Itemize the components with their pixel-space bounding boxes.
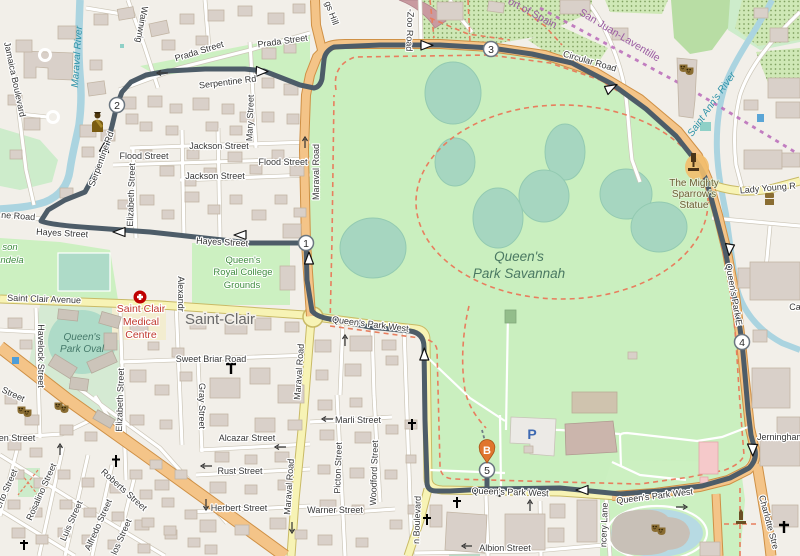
svg-text:The Mighty: The Mighty (669, 178, 718, 189)
svg-text:Jerningham: Jerningham (757, 432, 800, 442)
svg-text:Queen's: Queen's (64, 332, 101, 343)
svg-text:P: P (527, 426, 536, 442)
svg-text:-Zoo Road: -Zoo Road (404, 9, 415, 52)
svg-text:Jackson Street: Jackson Street (185, 171, 245, 181)
svg-text:Picton Street: Picton Street (332, 441, 344, 493)
svg-text:5: 5 (484, 465, 490, 477)
svg-text:Saint Clair: Saint Clair (117, 303, 166, 315)
svg-text:Queen's: Queen's (494, 249, 544, 264)
svg-text:Herbert Street: Herbert Street (211, 503, 268, 513)
svg-text:Saint-Clair: Saint-Clair (185, 311, 255, 328)
svg-text:Park Savannah: Park Savannah (473, 266, 565, 281)
svg-text:n Boulevard: n Boulevard (411, 496, 423, 544)
svg-text:B: B (483, 445, 491, 457)
svg-text:Mary Street: Mary Street (244, 94, 256, 141)
svg-text:Marli Street: Marli Street (335, 415, 382, 425)
svg-text:Alcazar Street: Alcazar Street (219, 433, 276, 443)
svg-text:Hayes Street: Hayes Street (36, 227, 89, 240)
svg-text:1: 1 (303, 238, 309, 250)
svg-text:Statue: Statue (680, 200, 709, 211)
svg-text:ndela: ndela (0, 255, 23, 266)
svg-text:en Street: en Street (0, 433, 36, 443)
svg-text:Flood Street: Flood Street (258, 157, 308, 167)
svg-text:gs Hill: gs Hill (323, 0, 341, 26)
svg-text:3: 3 (488, 44, 494, 56)
svg-text:Jackson Street: Jackson Street (189, 141, 249, 151)
svg-text:son: son (2, 242, 17, 253)
svg-text:Grounds: Grounds (224, 280, 261, 291)
svg-text:Centre: Centre (125, 329, 157, 341)
svg-text:Flood Street: Flood Street (119, 151, 169, 161)
svg-text:Gray Street: Gray Street (197, 383, 207, 430)
svg-text:Rust Street: Rust Street (217, 466, 263, 476)
svg-text:Alexandr: Alexandr (176, 276, 186, 312)
svg-text:Serpentine Rd: Serpentine Rd (198, 74, 256, 91)
svg-text:Maraval Road: Maraval Road (311, 144, 321, 200)
svg-text:Queen's: Queen's (225, 255, 260, 266)
svg-text:Park Oval: Park Oval (60, 344, 105, 355)
svg-text:ne Road: ne Road (1, 210, 36, 222)
svg-text:Ca: Ca (789, 302, 800, 312)
svg-text:Albion Street: Albion Street (479, 543, 531, 553)
svg-text:Royal College: Royal College (213, 267, 272, 278)
svg-text:Havelock Street: Havelock Street (36, 324, 46, 388)
svg-text:Queen's Park West: Queen's Park West (471, 486, 549, 499)
svg-text:Warner Street: Warner Street (307, 505, 363, 515)
svg-text:Sparrow's: Sparrow's (672, 189, 716, 200)
svg-text:Medical: Medical (123, 316, 159, 328)
svg-text:4: 4 (739, 337, 745, 349)
svg-text:Sweet Briar Road: Sweet Briar Road (176, 354, 247, 364)
svg-text:ncery Lane: ncery Lane (598, 502, 610, 547)
svg-text:2: 2 (114, 100, 120, 112)
